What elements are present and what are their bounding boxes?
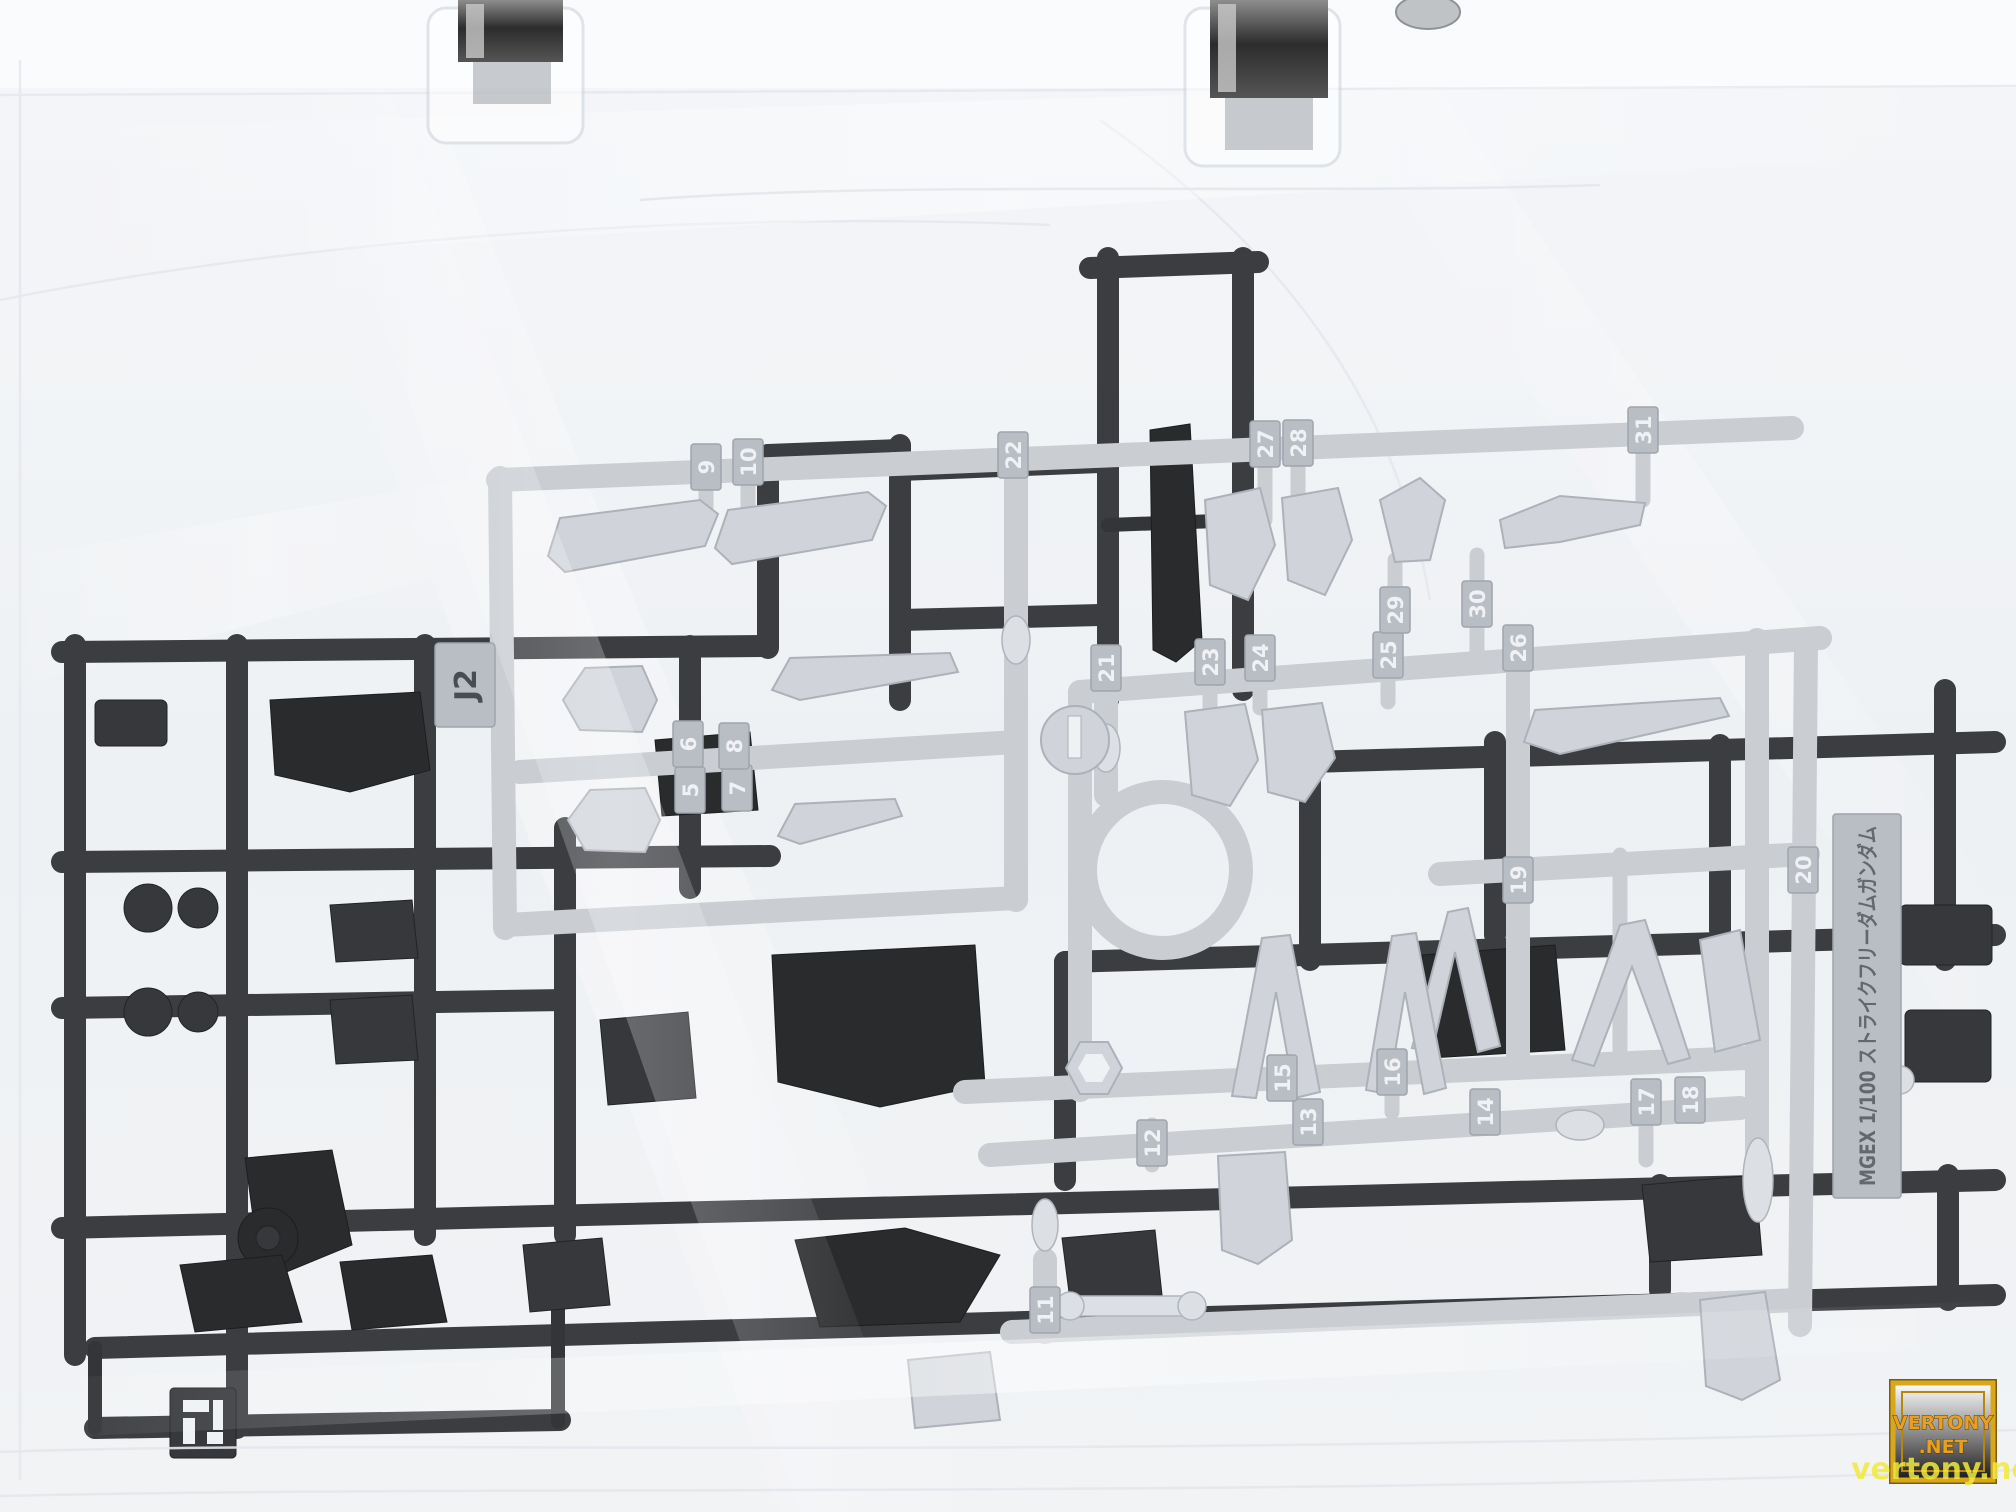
photo-canvas: J2 5 6 7 8 9 10 11 12 13 14 15 16 17 18 …	[0, 0, 2016, 1512]
bag-clip-left	[428, 0, 583, 143]
bag-sheen-overlay	[0, 0, 2016, 1512]
watermark-line1: VERTONY	[1893, 1412, 1993, 1434]
watermark-overlay-text: vertony.net	[1851, 1452, 2016, 1487]
photo-stage: J2 5 6 7 8 9 10 11 12 13 14 15 16 17 18 …	[0, 0, 2016, 1512]
clip-metal-screw	[1396, 0, 1460, 29]
